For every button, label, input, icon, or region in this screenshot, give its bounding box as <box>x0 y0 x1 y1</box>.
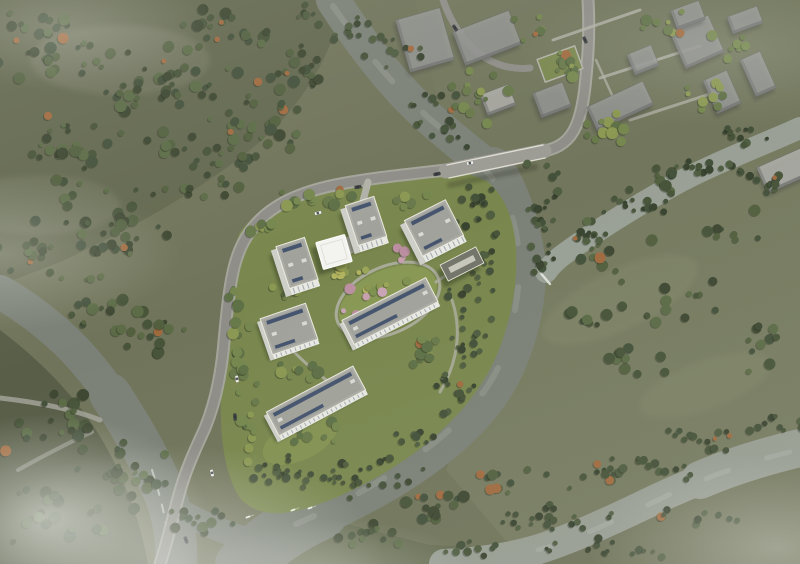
tree <box>710 444 718 452</box>
tree <box>120 83 126 89</box>
tree <box>244 100 249 105</box>
tree <box>244 444 253 453</box>
tree <box>232 300 244 312</box>
tree <box>13 37 19 43</box>
tree <box>415 442 420 447</box>
tree <box>236 389 243 396</box>
tree <box>462 355 466 359</box>
tree <box>367 465 373 471</box>
tree <box>264 139 273 148</box>
tree <box>303 477 310 484</box>
tree <box>43 28 51 36</box>
tree <box>143 67 148 72</box>
tree <box>171 148 180 157</box>
tree <box>286 143 296 153</box>
tree <box>227 328 239 340</box>
tree <box>42 401 48 407</box>
tree <box>212 507 219 514</box>
tree <box>418 45 423 50</box>
tree <box>443 491 453 501</box>
tree <box>477 281 481 285</box>
tree <box>71 408 77 414</box>
tree <box>723 447 729 453</box>
tree <box>461 307 467 313</box>
tree <box>474 330 481 337</box>
tree <box>594 469 599 474</box>
tree <box>487 210 496 219</box>
tree <box>630 198 635 203</box>
tree <box>460 326 466 332</box>
tree <box>255 464 263 472</box>
tree <box>276 367 287 378</box>
tree <box>161 141 171 151</box>
tree <box>252 398 260 406</box>
tree <box>651 549 655 553</box>
tree <box>156 224 160 228</box>
tree <box>262 473 266 477</box>
tree <box>298 470 302 474</box>
tree <box>134 187 138 191</box>
tree <box>616 137 626 147</box>
tree <box>152 479 162 489</box>
tree <box>673 432 678 437</box>
tree <box>458 195 466 203</box>
tree <box>344 283 355 294</box>
tree <box>101 230 107 236</box>
tree <box>228 33 234 39</box>
tree <box>196 514 201 519</box>
tree <box>595 237 603 245</box>
tree <box>679 9 685 15</box>
tree <box>75 301 83 309</box>
tree <box>516 525 521 530</box>
tree <box>232 67 243 78</box>
tree <box>452 91 460 99</box>
tree <box>7 10 13 16</box>
tree <box>400 496 412 508</box>
tree <box>452 548 460 556</box>
tree <box>356 33 362 39</box>
tree <box>574 519 581 526</box>
tree <box>483 333 488 338</box>
tree <box>240 163 248 171</box>
tree <box>17 490 22 495</box>
tree <box>618 124 629 135</box>
tree <box>181 63 189 71</box>
tree <box>685 85 690 90</box>
tree <box>753 177 760 184</box>
tree <box>412 432 420 440</box>
tree <box>443 549 448 554</box>
tree <box>132 305 144 317</box>
tree <box>356 270 361 275</box>
tree <box>486 267 494 275</box>
tree <box>345 22 353 30</box>
tree <box>188 133 196 141</box>
tree <box>666 428 672 434</box>
tree <box>736 127 741 132</box>
tree <box>434 383 440 389</box>
tree <box>511 16 518 23</box>
tree <box>68 427 75 434</box>
tree <box>719 91 727 99</box>
tree <box>266 73 275 82</box>
tree <box>147 333 154 340</box>
car <box>233 413 237 420</box>
tree <box>458 345 466 353</box>
tree <box>121 244 128 251</box>
car-glass <box>435 173 438 176</box>
tree <box>104 188 109 193</box>
tree <box>620 363 631 374</box>
tree <box>394 539 403 548</box>
tree <box>28 150 36 158</box>
tree <box>471 193 480 202</box>
tree <box>507 479 514 486</box>
tree <box>82 62 87 67</box>
tree <box>470 339 478 347</box>
tree <box>45 146 54 155</box>
tree <box>163 72 172 81</box>
tree <box>30 237 38 245</box>
tree <box>154 319 164 329</box>
tree <box>583 237 590 244</box>
tree <box>365 284 371 290</box>
tree <box>408 45 414 51</box>
tree <box>683 476 689 482</box>
tree <box>676 29 685 38</box>
tree <box>429 133 435 139</box>
tree <box>246 227 257 238</box>
tree <box>94 504 102 512</box>
tree <box>666 20 671 25</box>
tree <box>705 439 711 445</box>
tree <box>642 549 646 553</box>
tree <box>728 46 734 52</box>
tree <box>84 220 90 226</box>
tree <box>232 347 242 357</box>
tree <box>740 34 745 39</box>
tree <box>362 293 370 301</box>
tree <box>331 273 337 279</box>
tree <box>490 71 498 79</box>
car <box>235 375 239 382</box>
tree <box>385 65 389 69</box>
tree <box>44 56 53 65</box>
tree <box>115 446 120 451</box>
tree <box>633 370 641 378</box>
tree <box>299 66 306 73</box>
tree <box>626 186 634 194</box>
tree <box>687 472 693 478</box>
tree <box>24 486 31 493</box>
rendering-stage <box>0 0 800 564</box>
tree <box>604 246 614 256</box>
tree <box>550 505 557 512</box>
tree <box>59 14 70 25</box>
tree <box>527 243 535 251</box>
tree <box>223 181 230 188</box>
tree <box>131 462 139 470</box>
tree <box>727 433 732 438</box>
tree <box>484 97 488 101</box>
tree <box>287 372 294 379</box>
tree <box>354 20 361 27</box>
tree <box>712 224 722 234</box>
tree <box>645 463 652 470</box>
tree <box>230 317 241 328</box>
tree <box>285 71 290 76</box>
tree <box>663 199 668 204</box>
tree <box>686 158 692 164</box>
tree <box>697 438 702 443</box>
tree <box>95 250 101 256</box>
tree <box>190 80 202 92</box>
tree <box>526 207 531 212</box>
tree <box>554 187 563 196</box>
tree <box>601 309 613 321</box>
tree <box>715 428 722 435</box>
tree <box>613 268 619 274</box>
tree <box>466 184 473 191</box>
tree <box>219 151 224 156</box>
tree <box>712 307 719 314</box>
tree <box>713 437 717 441</box>
tree <box>393 196 401 204</box>
tree <box>267 219 277 229</box>
tree <box>77 240 87 250</box>
tree <box>417 514 428 525</box>
tree <box>8 267 14 273</box>
tree <box>491 288 496 293</box>
tree <box>106 48 116 58</box>
tree <box>161 59 166 64</box>
tree <box>529 522 533 526</box>
tree <box>409 360 418 369</box>
tree <box>252 152 260 160</box>
tree <box>590 246 595 251</box>
car-glass <box>234 416 237 419</box>
tree <box>297 15 301 19</box>
tree <box>214 37 219 42</box>
tree <box>738 167 743 172</box>
tree <box>765 137 769 141</box>
tree <box>573 236 578 241</box>
tree <box>542 226 546 230</box>
tree <box>343 462 349 468</box>
tree <box>198 91 206 99</box>
tree <box>707 30 718 41</box>
tree <box>551 256 556 261</box>
tree <box>725 125 731 131</box>
tree <box>78 444 88 454</box>
tree <box>329 199 340 210</box>
tree <box>280 190 285 195</box>
tree <box>290 57 301 68</box>
tree <box>335 189 344 198</box>
tree <box>293 197 301 205</box>
tree <box>201 193 208 200</box>
tree <box>50 490 59 499</box>
tree <box>584 132 591 139</box>
tree <box>662 513 666 517</box>
tree <box>494 230 501 237</box>
tree <box>660 180 672 192</box>
tree <box>332 422 341 431</box>
tree <box>182 327 187 332</box>
tree <box>312 12 316 16</box>
tree <box>169 509 174 514</box>
tree <box>687 432 694 439</box>
tree <box>604 353 615 364</box>
tree <box>400 192 411 203</box>
tree <box>365 20 372 27</box>
tree <box>772 180 780 188</box>
tree <box>660 368 669 377</box>
tree <box>651 317 662 328</box>
tree <box>302 11 310 19</box>
tree <box>263 28 270 35</box>
tree <box>422 504 429 511</box>
tree <box>77 389 89 401</box>
tree <box>247 411 253 417</box>
tree <box>746 368 752 374</box>
car-glass <box>211 471 214 474</box>
tree <box>265 124 276 135</box>
tree <box>551 218 556 223</box>
tree <box>314 74 324 84</box>
tree <box>450 336 455 341</box>
tree <box>461 222 470 231</box>
tree <box>45 42 57 54</box>
tree <box>87 303 99 315</box>
tree <box>192 20 204 32</box>
tree <box>281 200 293 212</box>
tree <box>259 135 264 140</box>
tree <box>599 118 605 124</box>
tree <box>331 36 339 44</box>
tree <box>705 166 713 174</box>
tree <box>278 100 285 107</box>
tree <box>741 41 750 50</box>
tree <box>162 230 172 240</box>
tree <box>489 248 495 254</box>
tree <box>224 293 233 302</box>
tree <box>133 85 141 93</box>
tree <box>610 540 615 545</box>
tree <box>547 242 551 246</box>
tree <box>87 275 95 283</box>
tree <box>708 277 717 286</box>
tree <box>127 491 137 501</box>
tree <box>170 523 180 533</box>
tree <box>0 445 11 456</box>
tree <box>762 421 768 427</box>
tree <box>369 527 376 534</box>
tree <box>744 127 748 131</box>
tree <box>315 20 323 28</box>
tree <box>675 164 679 168</box>
tree <box>457 541 466 550</box>
tree <box>569 64 574 69</box>
tree <box>228 129 234 135</box>
tree <box>676 428 682 434</box>
tree <box>417 335 426 344</box>
tree <box>359 468 363 472</box>
tree <box>524 466 531 473</box>
tree <box>593 460 601 468</box>
tree <box>535 222 541 228</box>
tree <box>190 162 198 170</box>
tree <box>151 192 156 197</box>
tree <box>592 233 596 237</box>
tree <box>487 470 498 481</box>
tree <box>295 366 304 375</box>
tree <box>81 320 86 325</box>
tree <box>661 468 669 476</box>
tree <box>107 239 117 249</box>
tree <box>198 4 209 15</box>
tree <box>448 287 452 291</box>
tree <box>42 134 51 143</box>
tree <box>34 512 45 523</box>
tree <box>448 82 456 90</box>
tree <box>161 450 169 458</box>
tree <box>586 547 591 552</box>
tree <box>764 358 775 369</box>
tree <box>652 164 660 172</box>
tree <box>44 112 52 120</box>
tree <box>98 242 108 252</box>
tree <box>489 260 494 265</box>
tree <box>76 45 81 50</box>
tree <box>250 99 258 107</box>
tree <box>377 287 387 297</box>
tree <box>111 227 120 236</box>
tree <box>362 267 369 274</box>
tree <box>553 541 558 546</box>
tree <box>485 484 495 494</box>
tree <box>208 14 214 20</box>
tree <box>433 511 441 519</box>
tree <box>636 456 640 460</box>
tree <box>347 191 357 201</box>
tree <box>211 161 216 166</box>
tree <box>630 551 635 556</box>
tree <box>506 490 511 495</box>
tree <box>723 54 732 63</box>
tree <box>694 516 702 524</box>
tree <box>477 217 482 222</box>
tree <box>91 123 97 129</box>
tree <box>446 135 454 143</box>
tree <box>355 15 360 20</box>
car-glass <box>356 186 359 189</box>
tree <box>98 273 104 279</box>
tree <box>230 521 235 526</box>
tree <box>60 276 65 281</box>
tree <box>58 33 69 44</box>
tree <box>31 216 41 226</box>
tree <box>170 82 175 87</box>
tree <box>320 474 327 481</box>
tree <box>748 126 754 132</box>
tree <box>422 92 428 98</box>
tree <box>445 382 450 387</box>
tree <box>313 366 325 378</box>
tree <box>293 105 301 113</box>
tree <box>87 42 94 49</box>
